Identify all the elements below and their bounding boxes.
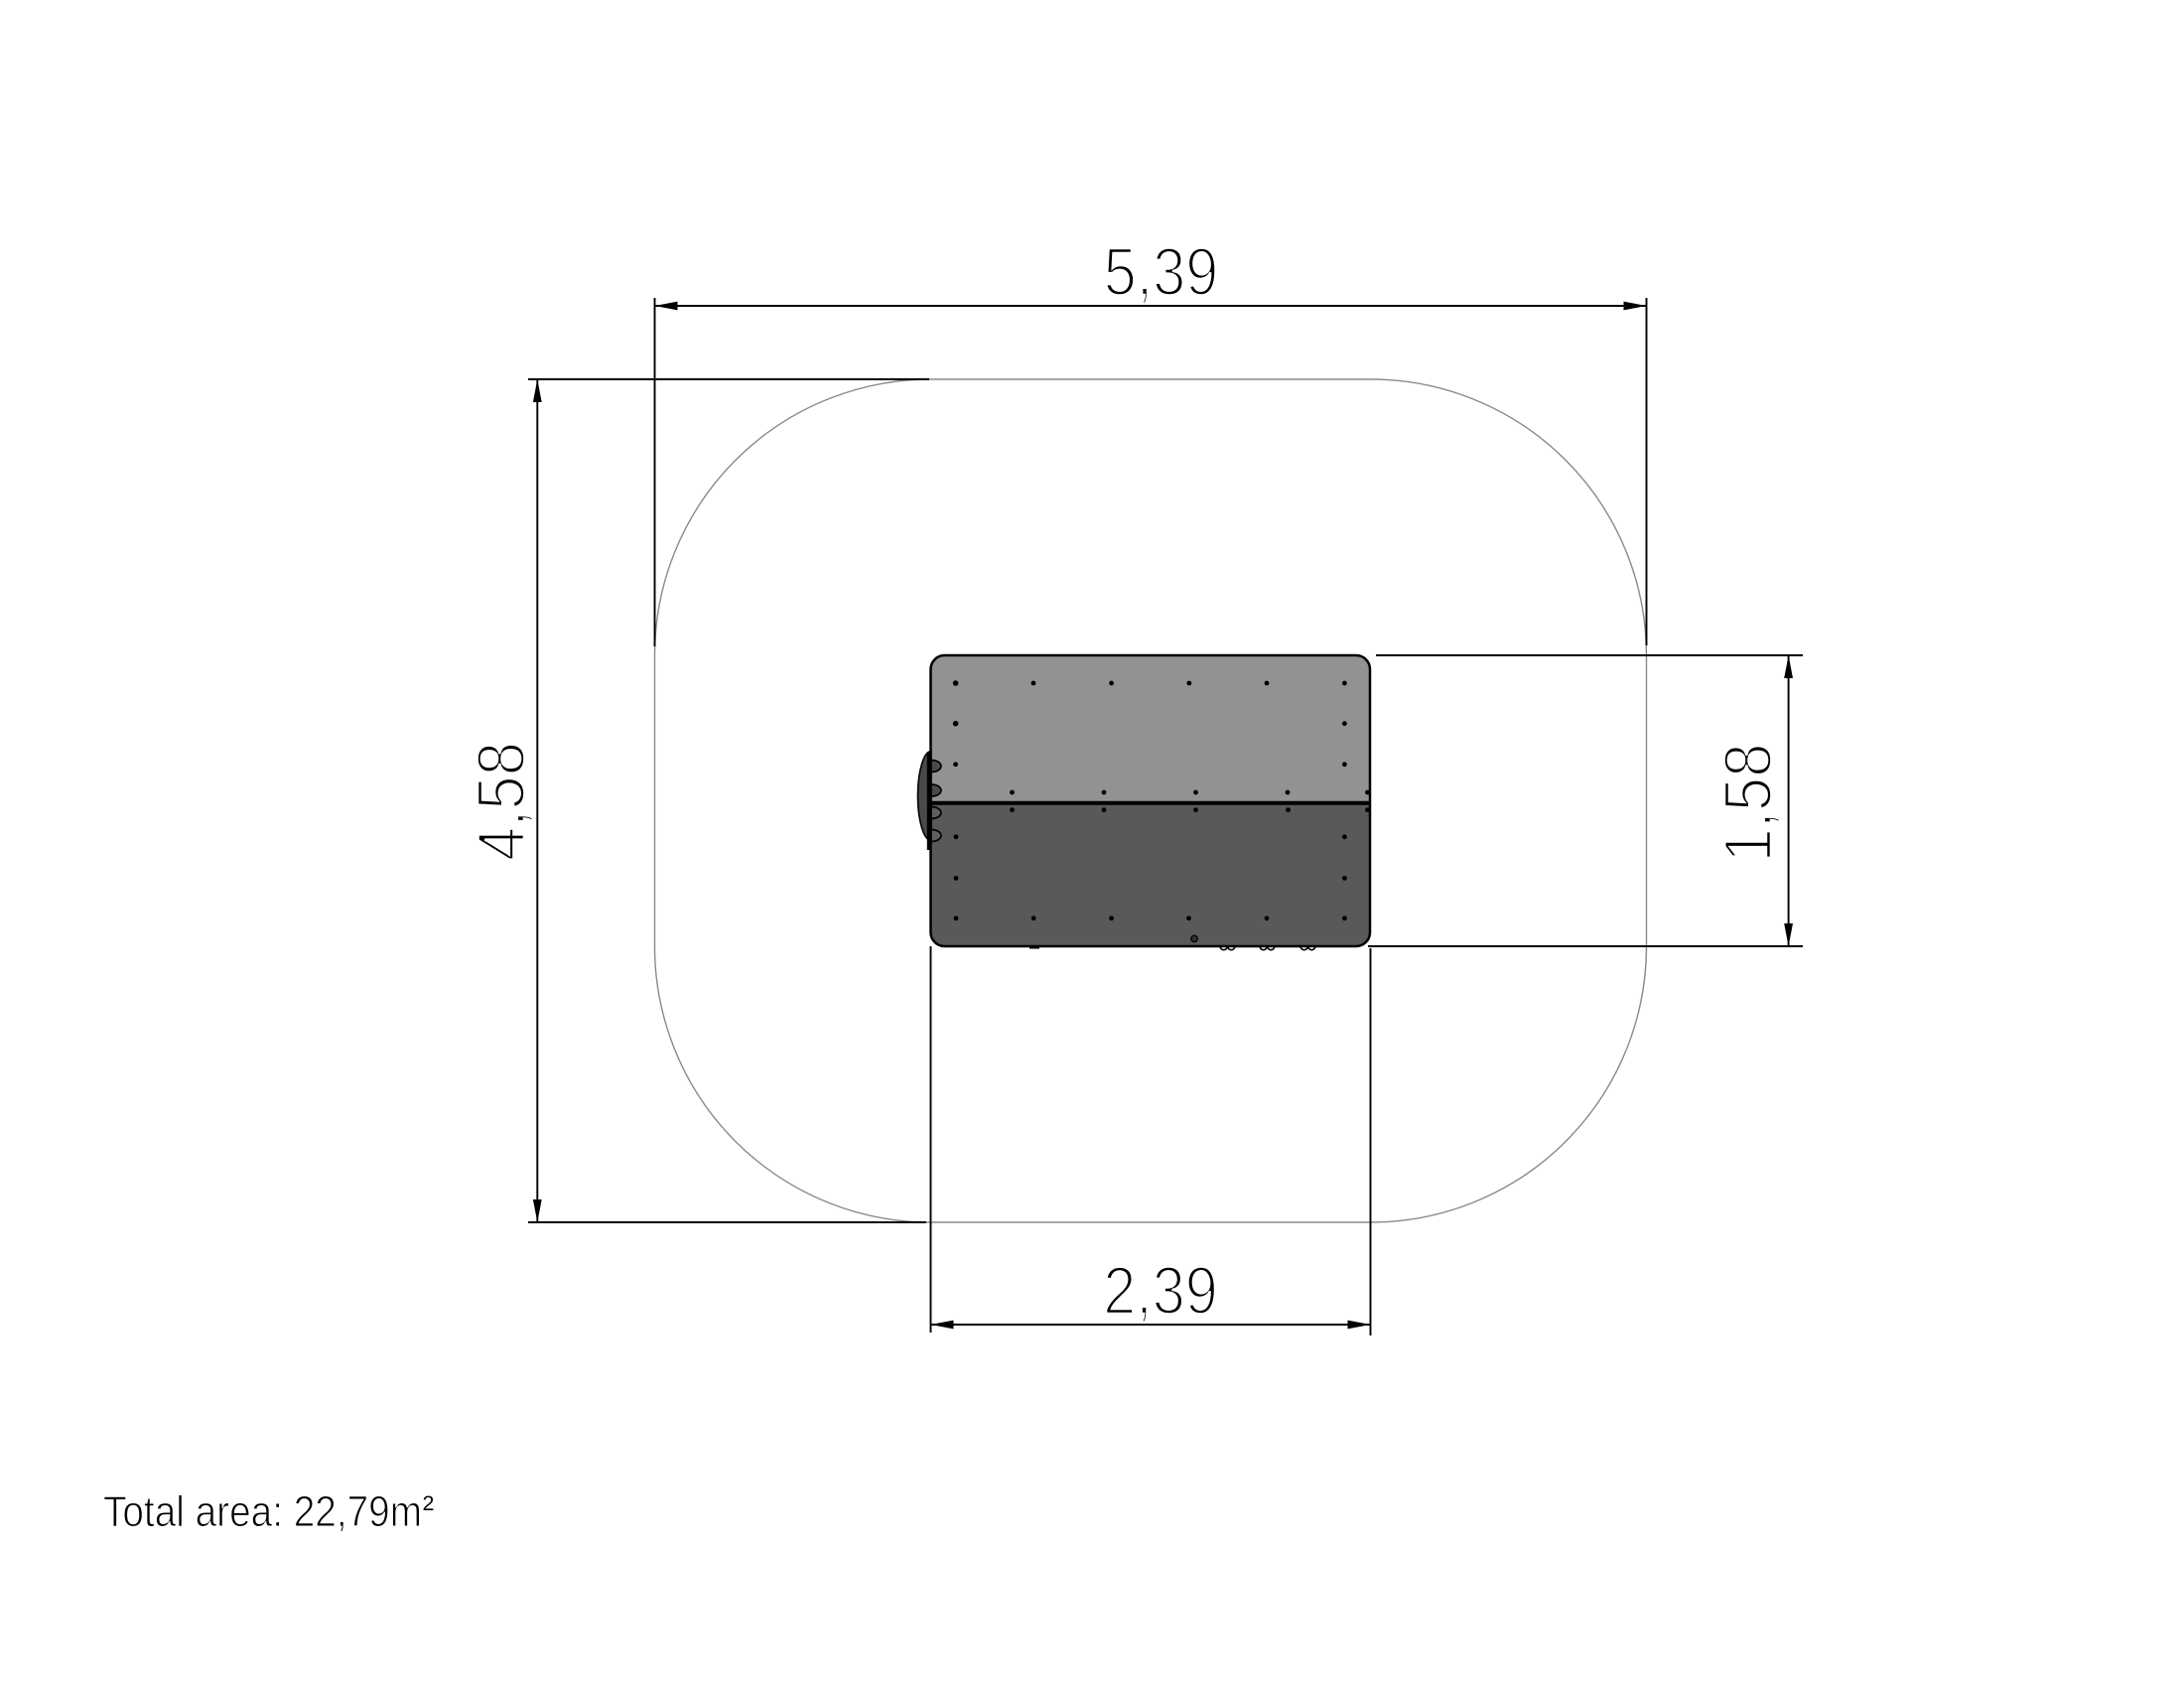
svg-text:1,58: 1,58 (1710, 744, 1786, 863)
svg-text:2: 2 (423, 1491, 435, 1515)
svg-text:5,39: 5,39 (1104, 234, 1219, 310)
svg-text:2,39: 2,39 (1103, 1253, 1218, 1329)
svg-text:Total area: 22,79m: Total area: 22,79m (103, 1488, 422, 1536)
svg-text:4,58: 4,58 (464, 742, 539, 861)
